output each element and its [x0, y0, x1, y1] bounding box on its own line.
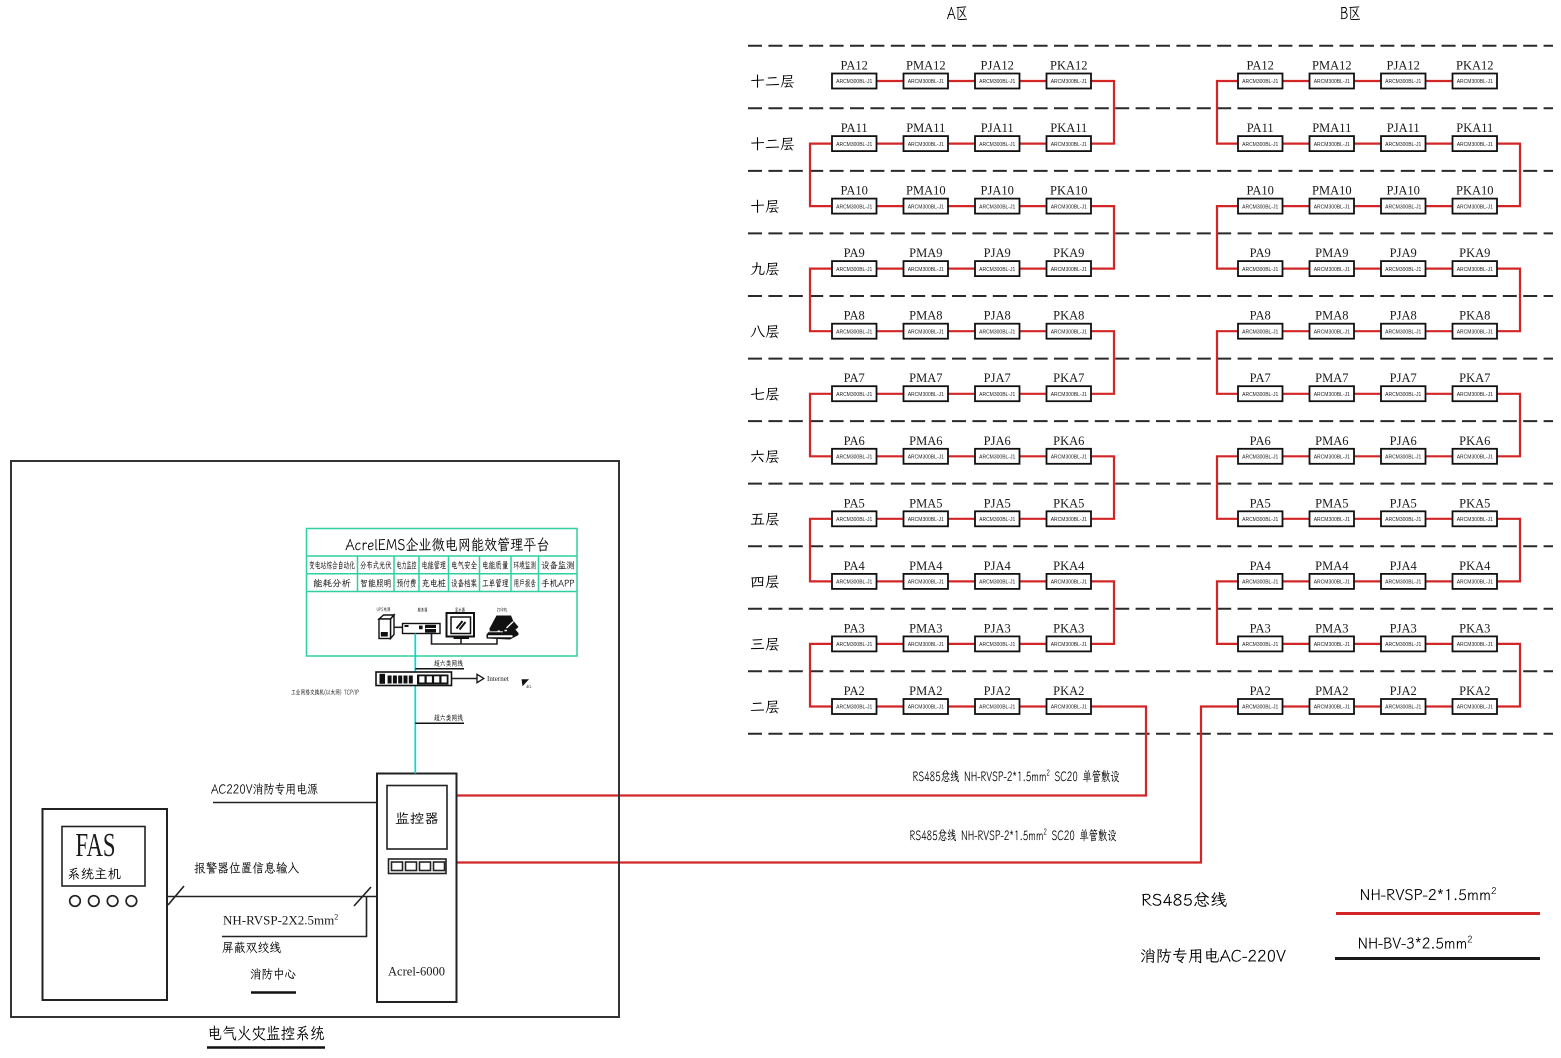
svg-text:ARCM300BL-J1: ARCM300BL-J1: [1242, 580, 1278, 586]
svg-text:ARCM300BL-J1: ARCM300BL-J1: [1242, 705, 1278, 711]
svg-text:PMA5: PMA5: [1315, 496, 1348, 510]
svg-text:ARCM300BL-J1: ARCM300BL-J1: [1242, 142, 1278, 148]
svg-text:ARCM300BL-J1: ARCM300BL-J1: [1457, 580, 1493, 586]
svg-text:ARCM300BL-J1: ARCM300BL-J1: [1385, 580, 1421, 586]
svg-text:ARCM300BL-J1: ARCM300BL-J1: [836, 329, 872, 335]
svg-text:ARCM300BL-J1: ARCM300BL-J1: [908, 142, 944, 148]
svg-text:ARCM300BL-J1: ARCM300BL-J1: [1314, 267, 1350, 273]
svg-text:ARCM300BL-J1: ARCM300BL-J1: [1242, 455, 1278, 461]
svg-text:ARCM300BL-J1: ARCM300BL-J1: [1051, 392, 1087, 398]
svg-text:ARCM300BL-J1: ARCM300BL-J1: [1457, 267, 1493, 273]
svg-text:PKA4: PKA4: [1459, 559, 1491, 573]
svg-text:ARCM300BL-J1: ARCM300BL-J1: [1314, 580, 1350, 586]
svg-text:ARCM300BL-J1: ARCM300BL-J1: [1457, 329, 1493, 335]
svg-text:PMA9: PMA9: [909, 246, 942, 260]
svg-text:PA6: PA6: [1250, 434, 1271, 448]
svg-text:ARCM300BL-J1: ARCM300BL-J1: [1242, 329, 1278, 335]
svg-text:ARCM300BL-J1: ARCM300BL-J1: [1314, 329, 1350, 335]
svg-text:ARCM300BL-J1: ARCM300BL-J1: [1385, 267, 1421, 273]
svg-text:PKA9: PKA9: [1459, 246, 1490, 260]
svg-text:PA4: PA4: [1250, 559, 1272, 573]
svg-text:PJA12: PJA12: [981, 59, 1014, 73]
svg-text:PKA9: PKA9: [1053, 246, 1084, 260]
svg-text:PMA6: PMA6: [909, 434, 942, 448]
svg-text:ARCM300BL-J1: ARCM300BL-J1: [979, 204, 1015, 210]
svg-text:FAS: FAS: [76, 827, 116, 864]
svg-text:PKA11: PKA11: [1050, 121, 1087, 135]
svg-text:ARCM300BL-J1: ARCM300BL-J1: [1314, 79, 1350, 85]
svg-text:ARCM300BL-J1: ARCM300BL-J1: [1385, 455, 1421, 461]
svg-text:ARCM300BL-J1: ARCM300BL-J1: [1051, 580, 1087, 586]
svg-text:ARCM300BL-J1: ARCM300BL-J1: [908, 329, 944, 335]
svg-text:PMA8: PMA8: [909, 309, 942, 323]
svg-text:PKA6: PKA6: [1053, 434, 1084, 448]
svg-text:PA6: PA6: [844, 434, 865, 448]
svg-text:ARCM300BL-J1: ARCM300BL-J1: [836, 204, 872, 210]
svg-text:PMA4: PMA4: [909, 559, 943, 573]
svg-text:ARCM300BL-J1: ARCM300BL-J1: [1385, 392, 1421, 398]
svg-text:ARCM300BL-J1: ARCM300BL-J1: [979, 455, 1015, 461]
svg-text:PJA8: PJA8: [1390, 309, 1417, 323]
svg-text:PKA2: PKA2: [1459, 684, 1490, 698]
svg-text:ARCM300BL-J1: ARCM300BL-J1: [979, 329, 1015, 335]
svg-text:ARCM300BL-J1: ARCM300BL-J1: [908, 580, 944, 586]
svg-text:PMA8: PMA8: [1315, 309, 1348, 323]
svg-text:ARCM300BL-J1: ARCM300BL-J1: [1314, 642, 1350, 648]
svg-text:PJA12: PJA12: [1387, 59, 1420, 73]
svg-text:ARCM300BL-J1: ARCM300BL-J1: [1051, 142, 1087, 148]
svg-text:4G: 4G: [526, 684, 532, 689]
svg-text:ARCM300BL-J1: ARCM300BL-J1: [1051, 455, 1087, 461]
svg-text:PKA3: PKA3: [1053, 621, 1084, 635]
svg-text:ARCM300BL-J1: ARCM300BL-J1: [1242, 79, 1278, 85]
svg-text:ARCM300BL-J1: ARCM300BL-J1: [979, 392, 1015, 398]
svg-text:ARCM300BL-J1: ARCM300BL-J1: [979, 642, 1015, 648]
svg-text:PA10: PA10: [841, 184, 868, 198]
svg-text:PJA3: PJA3: [1390, 621, 1417, 635]
svg-text:PA10: PA10: [1247, 184, 1274, 198]
svg-text:PJA11: PJA11: [981, 121, 1014, 135]
svg-text:ARCM300BL-J1: ARCM300BL-J1: [1051, 642, 1087, 648]
svg-text:PKA7: PKA7: [1459, 371, 1490, 385]
svg-text:ARCM300BL-J1: ARCM300BL-J1: [1242, 392, 1278, 398]
svg-text:ARCM300BL-J1: ARCM300BL-J1: [836, 580, 872, 586]
svg-text:PMA2: PMA2: [1315, 684, 1348, 698]
svg-text:PMA2: PMA2: [909, 684, 942, 698]
svg-text:PKA4: PKA4: [1053, 559, 1085, 573]
svg-text:ARCM300BL-J1: ARCM300BL-J1: [908, 79, 944, 85]
svg-text:PA11: PA11: [1247, 121, 1274, 135]
svg-text:ARCM300BL-J1: ARCM300BL-J1: [1457, 642, 1493, 648]
svg-text:PA9: PA9: [844, 246, 865, 260]
svg-text:ARCM300BL-J1: ARCM300BL-J1: [1051, 329, 1087, 335]
svg-text:PJA9: PJA9: [1390, 246, 1417, 260]
svg-text:ARCM300BL-J1: ARCM300BL-J1: [1051, 517, 1087, 523]
svg-text:PMA5: PMA5: [909, 496, 942, 510]
svg-text:PMA3: PMA3: [1315, 621, 1348, 635]
svg-text:PA8: PA8: [1250, 309, 1271, 323]
svg-text:ARCM300BL-J1: ARCM300BL-J1: [1051, 267, 1087, 273]
svg-text:PA12: PA12: [1247, 59, 1274, 73]
svg-text:ARCM300BL-J1: ARCM300BL-J1: [1314, 517, 1350, 523]
svg-text:ARCM300BL-J1: ARCM300BL-J1: [908, 642, 944, 648]
svg-text:ARCM300BL-J1: ARCM300BL-J1: [836, 267, 872, 273]
svg-text:PMA12: PMA12: [906, 59, 946, 73]
svg-text:PMA10: PMA10: [1312, 184, 1352, 198]
svg-text:PJA2: PJA2: [1390, 684, 1417, 698]
svg-text:PMA7: PMA7: [1315, 371, 1348, 385]
svg-text:PKA12: PKA12: [1050, 59, 1088, 73]
svg-text:ARCM300BL-J1: ARCM300BL-J1: [1314, 392, 1350, 398]
svg-text:ARCM300BL-J1: ARCM300BL-J1: [836, 705, 872, 711]
svg-text:PMA3: PMA3: [909, 621, 942, 635]
svg-text:PA7: PA7: [1250, 371, 1271, 385]
svg-text:ARCM300BL-J1: ARCM300BL-J1: [1457, 517, 1493, 523]
svg-text:PA11: PA11: [841, 121, 868, 135]
svg-text:Acrel-6000: Acrel-6000: [388, 965, 445, 979]
svg-text:PMA4: PMA4: [1315, 559, 1349, 573]
svg-text:PJA10: PJA10: [1387, 184, 1420, 198]
svg-text:PA5: PA5: [844, 496, 865, 510]
svg-text:ARCM300BL-J1: ARCM300BL-J1: [1242, 204, 1278, 210]
svg-text:ARCM300BL-J1: ARCM300BL-J1: [908, 204, 944, 210]
svg-text:ARCM300BL-J1: ARCM300BL-J1: [979, 517, 1015, 523]
svg-text:PA9: PA9: [1250, 246, 1271, 260]
svg-text:PA7: PA7: [844, 371, 865, 385]
svg-text:ARCM300BL-J1: ARCM300BL-J1: [836, 79, 872, 85]
svg-text:ARCM300BL-J1: ARCM300BL-J1: [979, 142, 1015, 148]
svg-text:PJA3: PJA3: [984, 621, 1011, 635]
svg-text:PKA7: PKA7: [1053, 371, 1084, 385]
svg-text:PKA8: PKA8: [1053, 309, 1084, 323]
svg-text:ARCM300BL-J1: ARCM300BL-J1: [1242, 267, 1278, 273]
svg-text:PJA10: PJA10: [981, 184, 1014, 198]
svg-text:ARCM300BL-J1: ARCM300BL-J1: [836, 455, 872, 461]
svg-text:ARCM300BL-J1: ARCM300BL-J1: [1385, 79, 1421, 85]
svg-text:PJA11: PJA11: [1387, 121, 1420, 135]
svg-text:ARCM300BL-J1: ARCM300BL-J1: [1314, 455, 1350, 461]
svg-text:PJA4: PJA4: [984, 559, 1012, 573]
svg-text:PA8: PA8: [844, 309, 865, 323]
svg-text:ARCM300BL-J1: ARCM300BL-J1: [1457, 455, 1493, 461]
svg-text:PJA7: PJA7: [984, 371, 1011, 385]
svg-text:ARCM300BL-J1: ARCM300BL-J1: [979, 267, 1015, 273]
svg-text:PA5: PA5: [1250, 496, 1271, 510]
svg-text:ARCM300BL-J1: ARCM300BL-J1: [1385, 204, 1421, 210]
svg-text:ARCM300BL-J1: ARCM300BL-J1: [908, 455, 944, 461]
svg-text:PKA8: PKA8: [1459, 309, 1490, 323]
svg-text:ARCM300BL-J1: ARCM300BL-J1: [1457, 204, 1493, 210]
svg-text:PJA5: PJA5: [1390, 496, 1417, 510]
svg-text:ARCM300BL-J1: ARCM300BL-J1: [836, 392, 872, 398]
svg-text:ARCM300BL-J1: ARCM300BL-J1: [1314, 142, 1350, 148]
svg-text:ARCM300BL-J1: ARCM300BL-J1: [836, 142, 872, 148]
svg-text:ARCM300BL-J1: ARCM300BL-J1: [1385, 705, 1421, 711]
svg-text:ARCM300BL-J1: ARCM300BL-J1: [1385, 142, 1421, 148]
svg-text:ARCM300BL-J1: ARCM300BL-J1: [1051, 79, 1087, 85]
svg-text:PJA5: PJA5: [984, 496, 1011, 510]
svg-text:PKA10: PKA10: [1456, 184, 1494, 198]
svg-text:PKA3: PKA3: [1459, 621, 1490, 635]
svg-text:PA3: PA3: [1250, 621, 1271, 635]
svg-text:NH-RVSP-2X2.5mm2: NH-RVSP-2X2.5mm2: [223, 913, 338, 928]
svg-text:PJA4: PJA4: [1390, 559, 1418, 573]
svg-text:ARCM300BL-J1: ARCM300BL-J1: [1385, 642, 1421, 648]
svg-text:PJA6: PJA6: [1390, 434, 1417, 448]
svg-text:ARCM300BL-J1: ARCM300BL-J1: [979, 79, 1015, 85]
svg-text:ARCM300BL-J1: ARCM300BL-J1: [1314, 705, 1350, 711]
svg-text:ARCM300BL-J1: ARCM300BL-J1: [908, 392, 944, 398]
svg-text:PMA10: PMA10: [906, 184, 946, 198]
svg-text:ARCM300BL-J1: ARCM300BL-J1: [836, 642, 872, 648]
svg-text:ARCM300BL-J1: ARCM300BL-J1: [979, 580, 1015, 586]
svg-text:PMA11: PMA11: [1312, 121, 1351, 135]
svg-text:ARCM300BL-J1: ARCM300BL-J1: [1457, 142, 1493, 148]
svg-text:PA4: PA4: [844, 559, 866, 573]
svg-text:ARCM300BL-J1: ARCM300BL-J1: [1051, 705, 1087, 711]
svg-text:ARCM300BL-J1: ARCM300BL-J1: [836, 517, 872, 523]
svg-text:PKA10: PKA10: [1050, 184, 1088, 198]
svg-text:PA3: PA3: [844, 621, 865, 635]
svg-text:ARCM300BL-J1: ARCM300BL-J1: [1457, 392, 1493, 398]
svg-text:ARCM300BL-J1: ARCM300BL-J1: [1385, 517, 1421, 523]
svg-text:PMA6: PMA6: [1315, 434, 1348, 448]
svg-text:PMA9: PMA9: [1315, 246, 1348, 260]
svg-text:ARCM300BL-J1: ARCM300BL-J1: [1457, 705, 1493, 711]
svg-text:ARCM300BL-J1: ARCM300BL-J1: [1051, 204, 1087, 210]
svg-text:PJA2: PJA2: [984, 684, 1011, 698]
svg-text:Internet: Internet: [487, 675, 509, 683]
svg-text:PKA5: PKA5: [1053, 496, 1084, 510]
svg-text:ARCM300BL-J1: ARCM300BL-J1: [1242, 642, 1278, 648]
svg-text:PMA11: PMA11: [906, 121, 945, 135]
svg-text:PKA11: PKA11: [1456, 121, 1493, 135]
svg-text:ARCM300BL-J1: ARCM300BL-J1: [1314, 204, 1350, 210]
svg-text:ARCM300BL-J1: ARCM300BL-J1: [979, 705, 1015, 711]
svg-text:ARCM300BL-J1: ARCM300BL-J1: [908, 267, 944, 273]
svg-text:PJA7: PJA7: [1390, 371, 1417, 385]
svg-text:ARCM300BL-J1: ARCM300BL-J1: [908, 517, 944, 523]
svg-text:PA2: PA2: [1250, 684, 1271, 698]
svg-text:PJA8: PJA8: [984, 309, 1011, 323]
svg-text:PMA12: PMA12: [1312, 59, 1352, 73]
svg-text:PA2: PA2: [844, 684, 865, 698]
svg-text:ARCM300BL-J1: ARCM300BL-J1: [1242, 517, 1278, 523]
svg-text:PA12: PA12: [841, 59, 868, 73]
svg-text:PKA5: PKA5: [1459, 496, 1490, 510]
svg-text:PKA6: PKA6: [1459, 434, 1490, 448]
svg-text:ARCM300BL-J1: ARCM300BL-J1: [908, 705, 944, 711]
svg-text:PMA7: PMA7: [909, 371, 942, 385]
svg-text:PJA6: PJA6: [984, 434, 1011, 448]
svg-text:PJA9: PJA9: [984, 246, 1011, 260]
svg-text:ARCM300BL-J1: ARCM300BL-J1: [1457, 79, 1493, 85]
svg-text:ARCM300BL-J1: ARCM300BL-J1: [1385, 329, 1421, 335]
svg-text:PKA12: PKA12: [1456, 59, 1494, 73]
svg-text:PKA2: PKA2: [1053, 684, 1084, 698]
